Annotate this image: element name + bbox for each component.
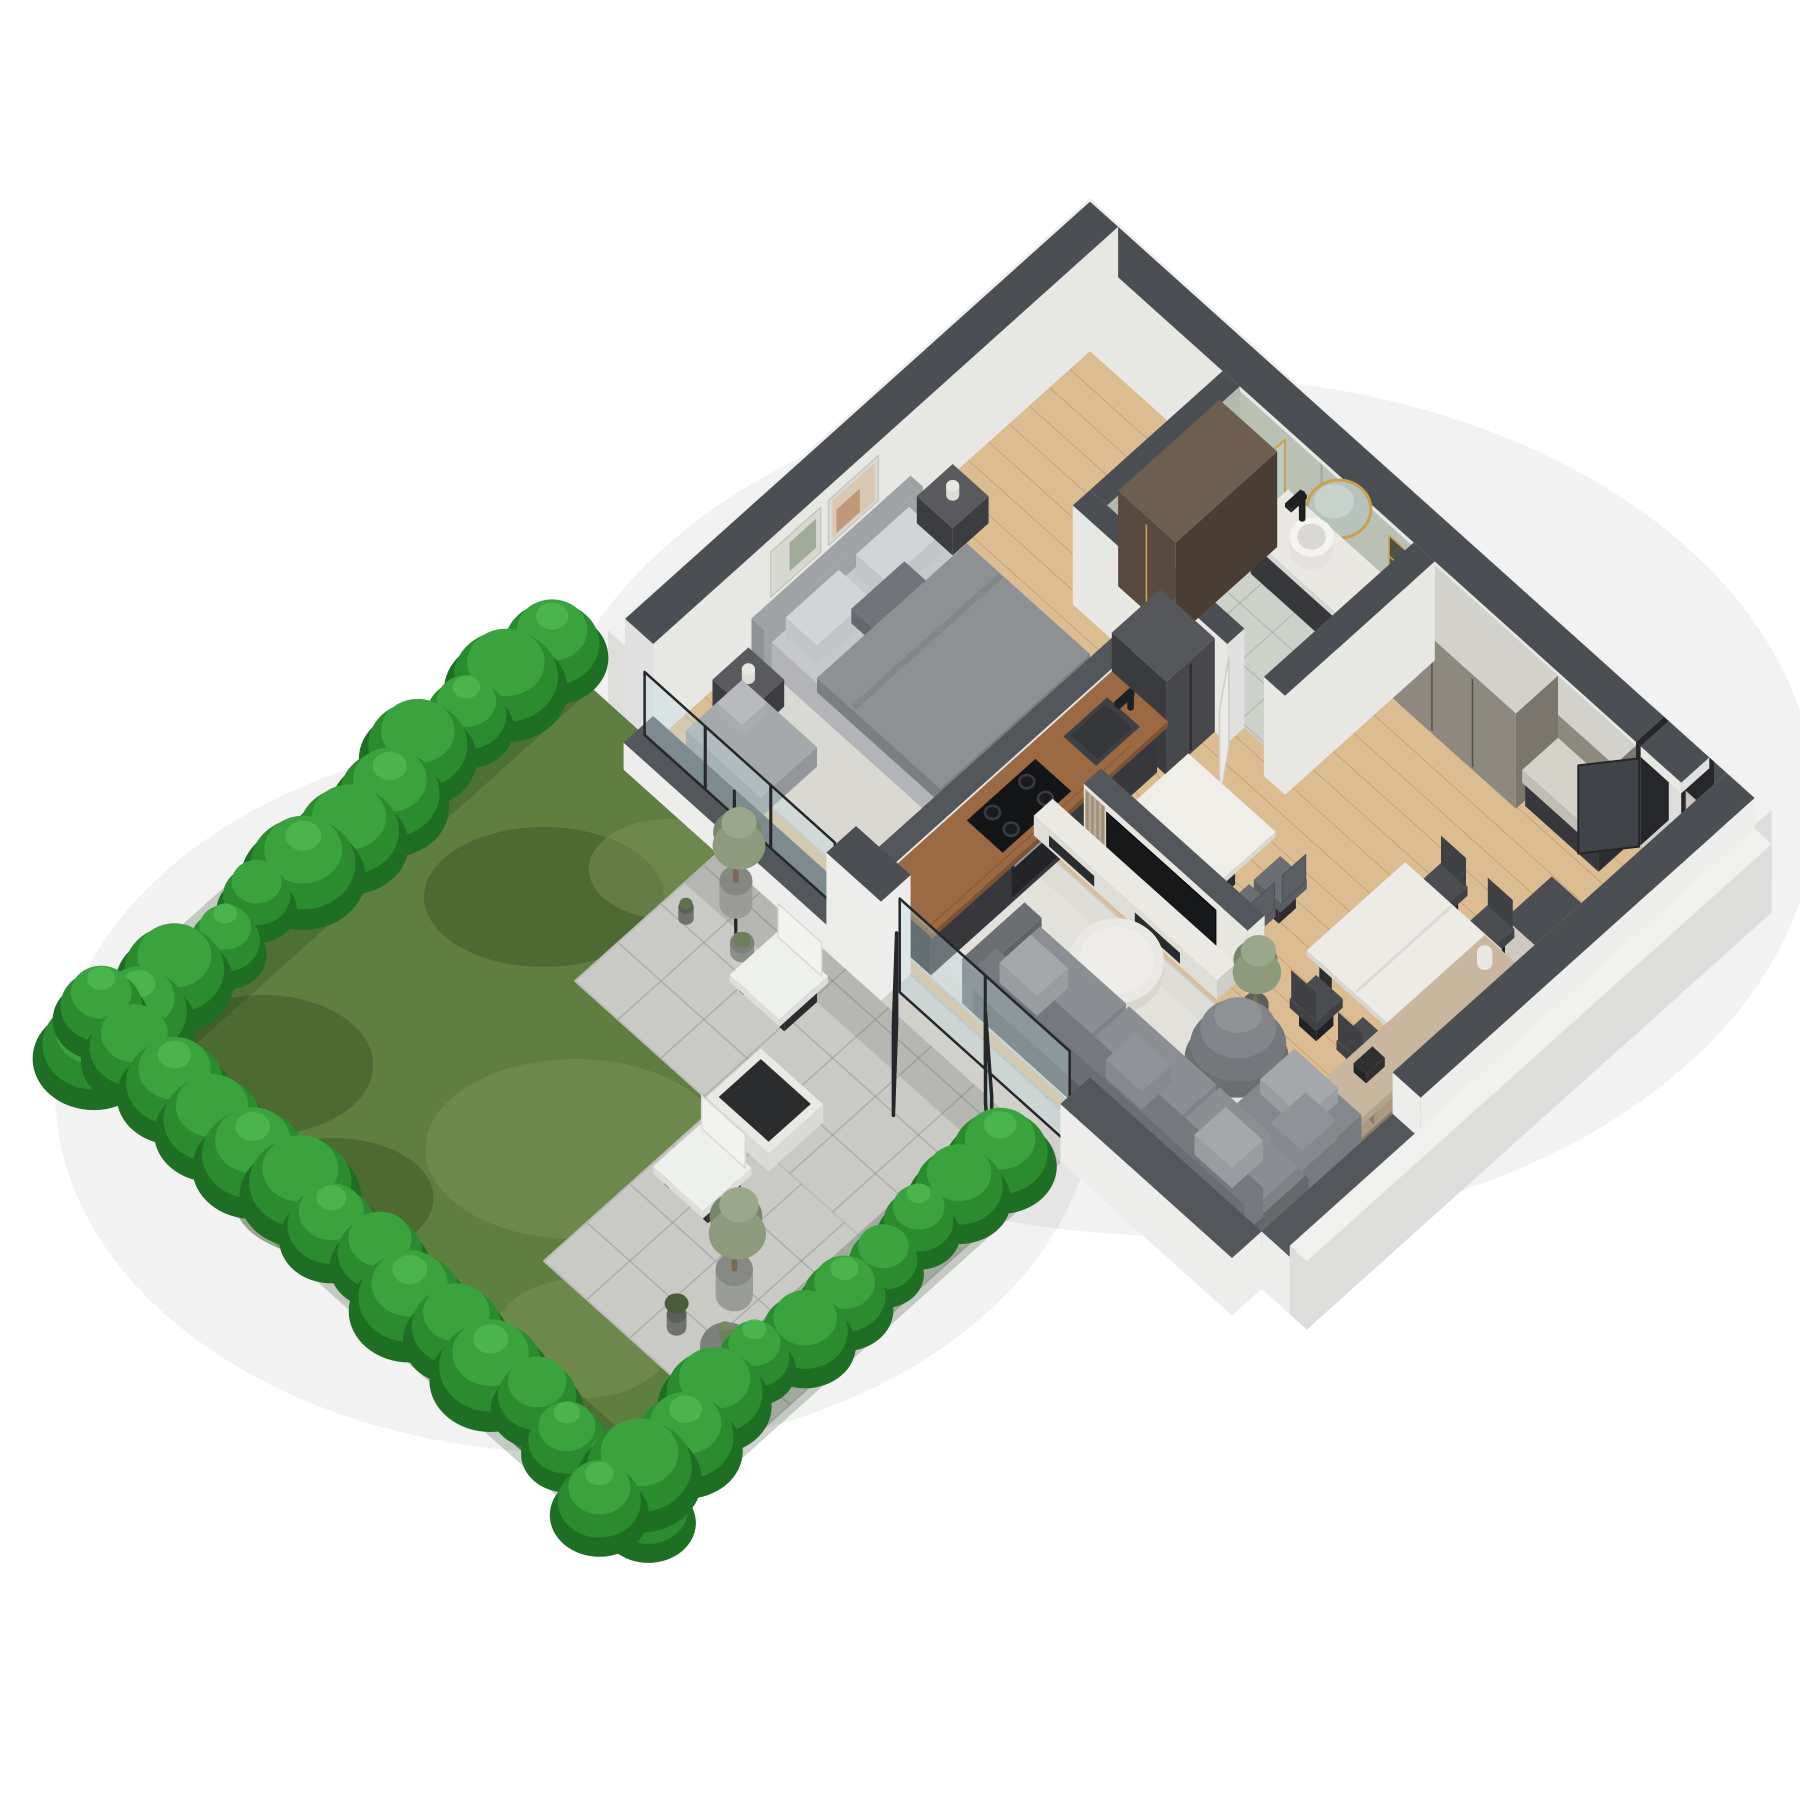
burner-1-center: [1021, 776, 1033, 787]
shelf-deco-top-a: [1477, 945, 1492, 970]
entry-wardrobe-gap-2: [1472, 678, 1474, 768]
beanbag-highlight: [1214, 997, 1262, 1033]
page-background: [0, 0, 1800, 1800]
bedroom-wardrobe-handle: [1146, 524, 1148, 606]
floorplan-3d-render: [0, 0, 1800, 1800]
terrace-olive-blob-3: [721, 807, 756, 839]
bath-mirror-highlight: [1314, 484, 1354, 518]
patio-olive-blob-3: [719, 1187, 759, 1223]
terrace-cactus: [679, 898, 692, 910]
lamp-a: [946, 480, 959, 501]
burner-3-center: [986, 807, 998, 818]
entry-door-leaf-open: [1578, 758, 1639, 853]
patio-snake-plant: [665, 1293, 689, 1313]
burner-4-center: [1005, 824, 1017, 835]
lamp-b: [742, 663, 755, 684]
kitchen-fridge-gap: [1190, 663, 1192, 752]
dining-plant-blob-3: [1241, 935, 1276, 967]
terrace-bowl-plant: [733, 932, 751, 948]
window-mullion-2: [769, 784, 772, 850]
window-mullion-1: [704, 725, 707, 791]
bath-sink-basin: [1297, 524, 1326, 550]
